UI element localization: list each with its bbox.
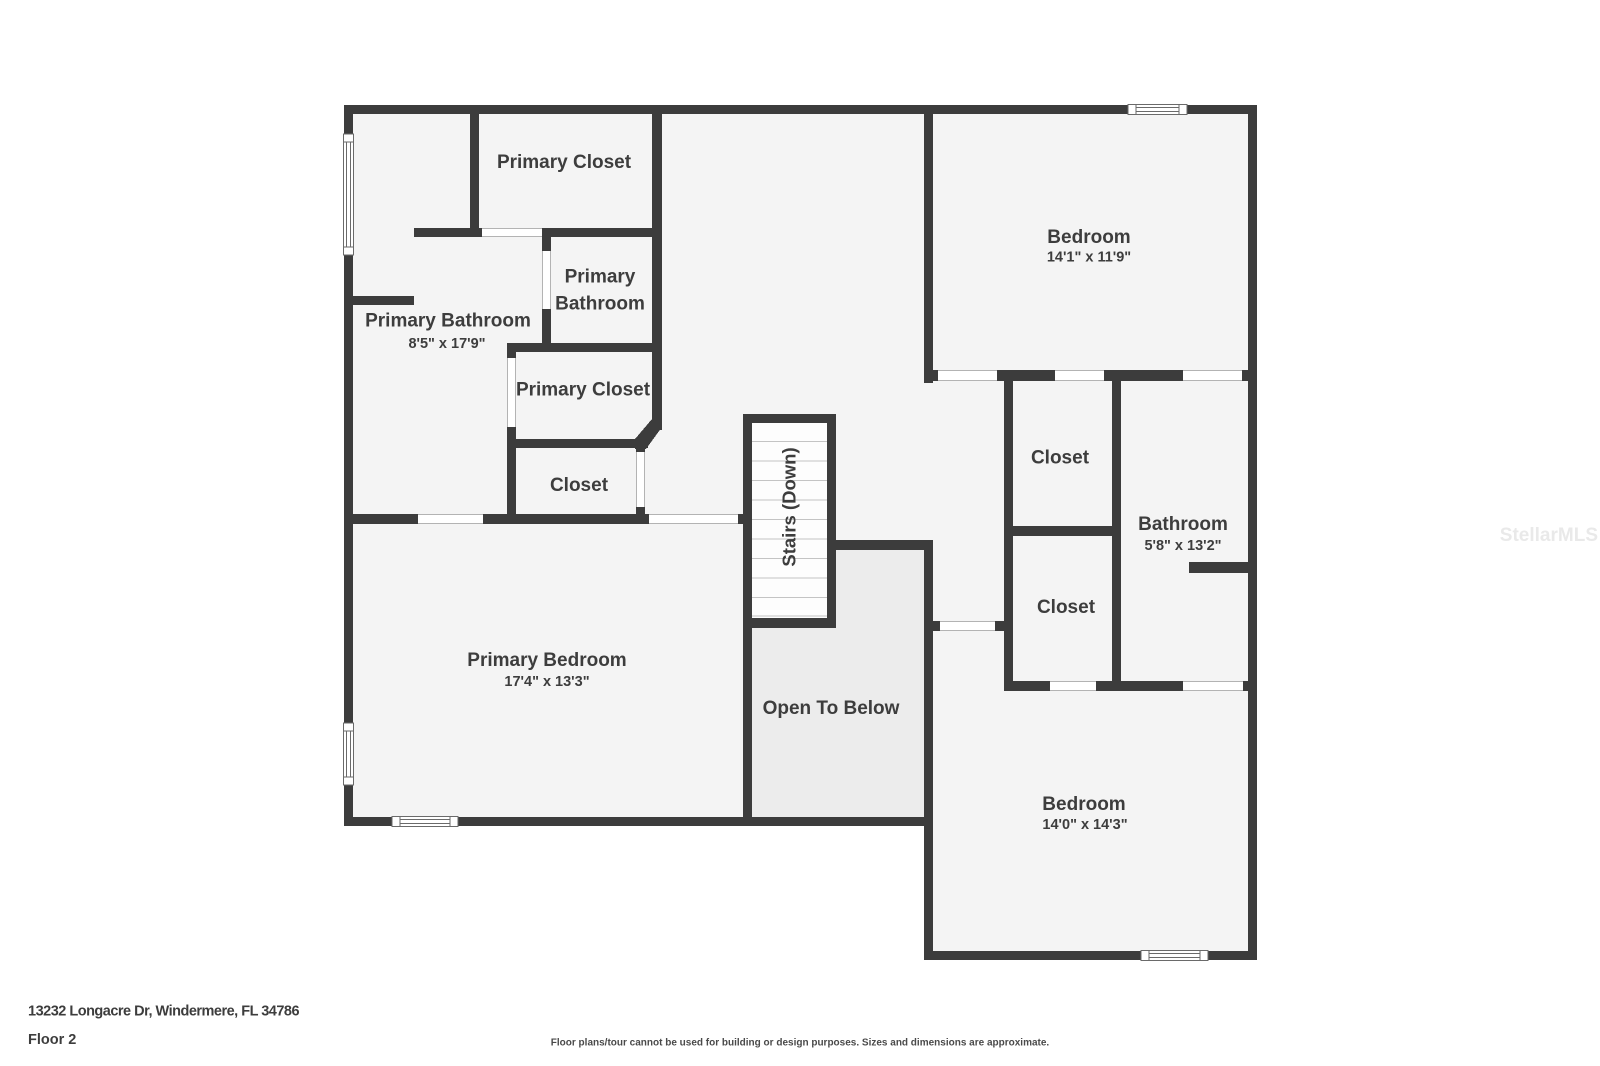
svg-text:Primary Closet: Primary Closet xyxy=(497,152,632,173)
svg-text:5'8" x 13'2": 5'8" x 13'2" xyxy=(1144,538,1221,554)
svg-text:Open To Below: Open To Below xyxy=(763,698,900,719)
svg-text:Floor plans/tour cannot be use: Floor plans/tour cannot be used for buil… xyxy=(551,1038,1050,1049)
svg-text:Primary Bathroom: Primary Bathroom xyxy=(365,311,531,332)
svg-text:Primary: Primary xyxy=(565,267,636,288)
svg-text:Bathroom: Bathroom xyxy=(555,294,645,315)
svg-text:13232 Longacre Dr, Windermere,: 13232 Longacre Dr, Windermere, FL 34786 xyxy=(28,1004,299,1020)
svg-text:Bathroom: Bathroom xyxy=(1138,514,1228,535)
svg-text:Primary Closet: Primary Closet xyxy=(516,380,651,401)
svg-text:14'1" x 11'9": 14'1" x 11'9" xyxy=(1047,250,1131,266)
svg-text:Primary Bedroom: Primary Bedroom xyxy=(467,650,626,671)
svg-text:Bedroom: Bedroom xyxy=(1042,794,1125,815)
svg-text:8'5" x 17'9": 8'5" x 17'9" xyxy=(408,336,485,352)
svg-text:Floor 2: Floor 2 xyxy=(28,1032,76,1048)
svg-text:14'0" x 14'3": 14'0" x 14'3" xyxy=(1042,817,1127,833)
svg-text:Stairs (Down): Stairs (Down) xyxy=(779,447,800,566)
svg-text:Closet: Closet xyxy=(550,475,609,496)
svg-text:StellarMLS: StellarMLS xyxy=(1500,525,1598,546)
svg-text:Bedroom: Bedroom xyxy=(1047,227,1130,248)
svg-text:Closet: Closet xyxy=(1031,448,1090,469)
svg-text:17'4" x 13'3": 17'4" x 13'3" xyxy=(504,674,589,690)
svg-text:Closet: Closet xyxy=(1037,597,1096,618)
